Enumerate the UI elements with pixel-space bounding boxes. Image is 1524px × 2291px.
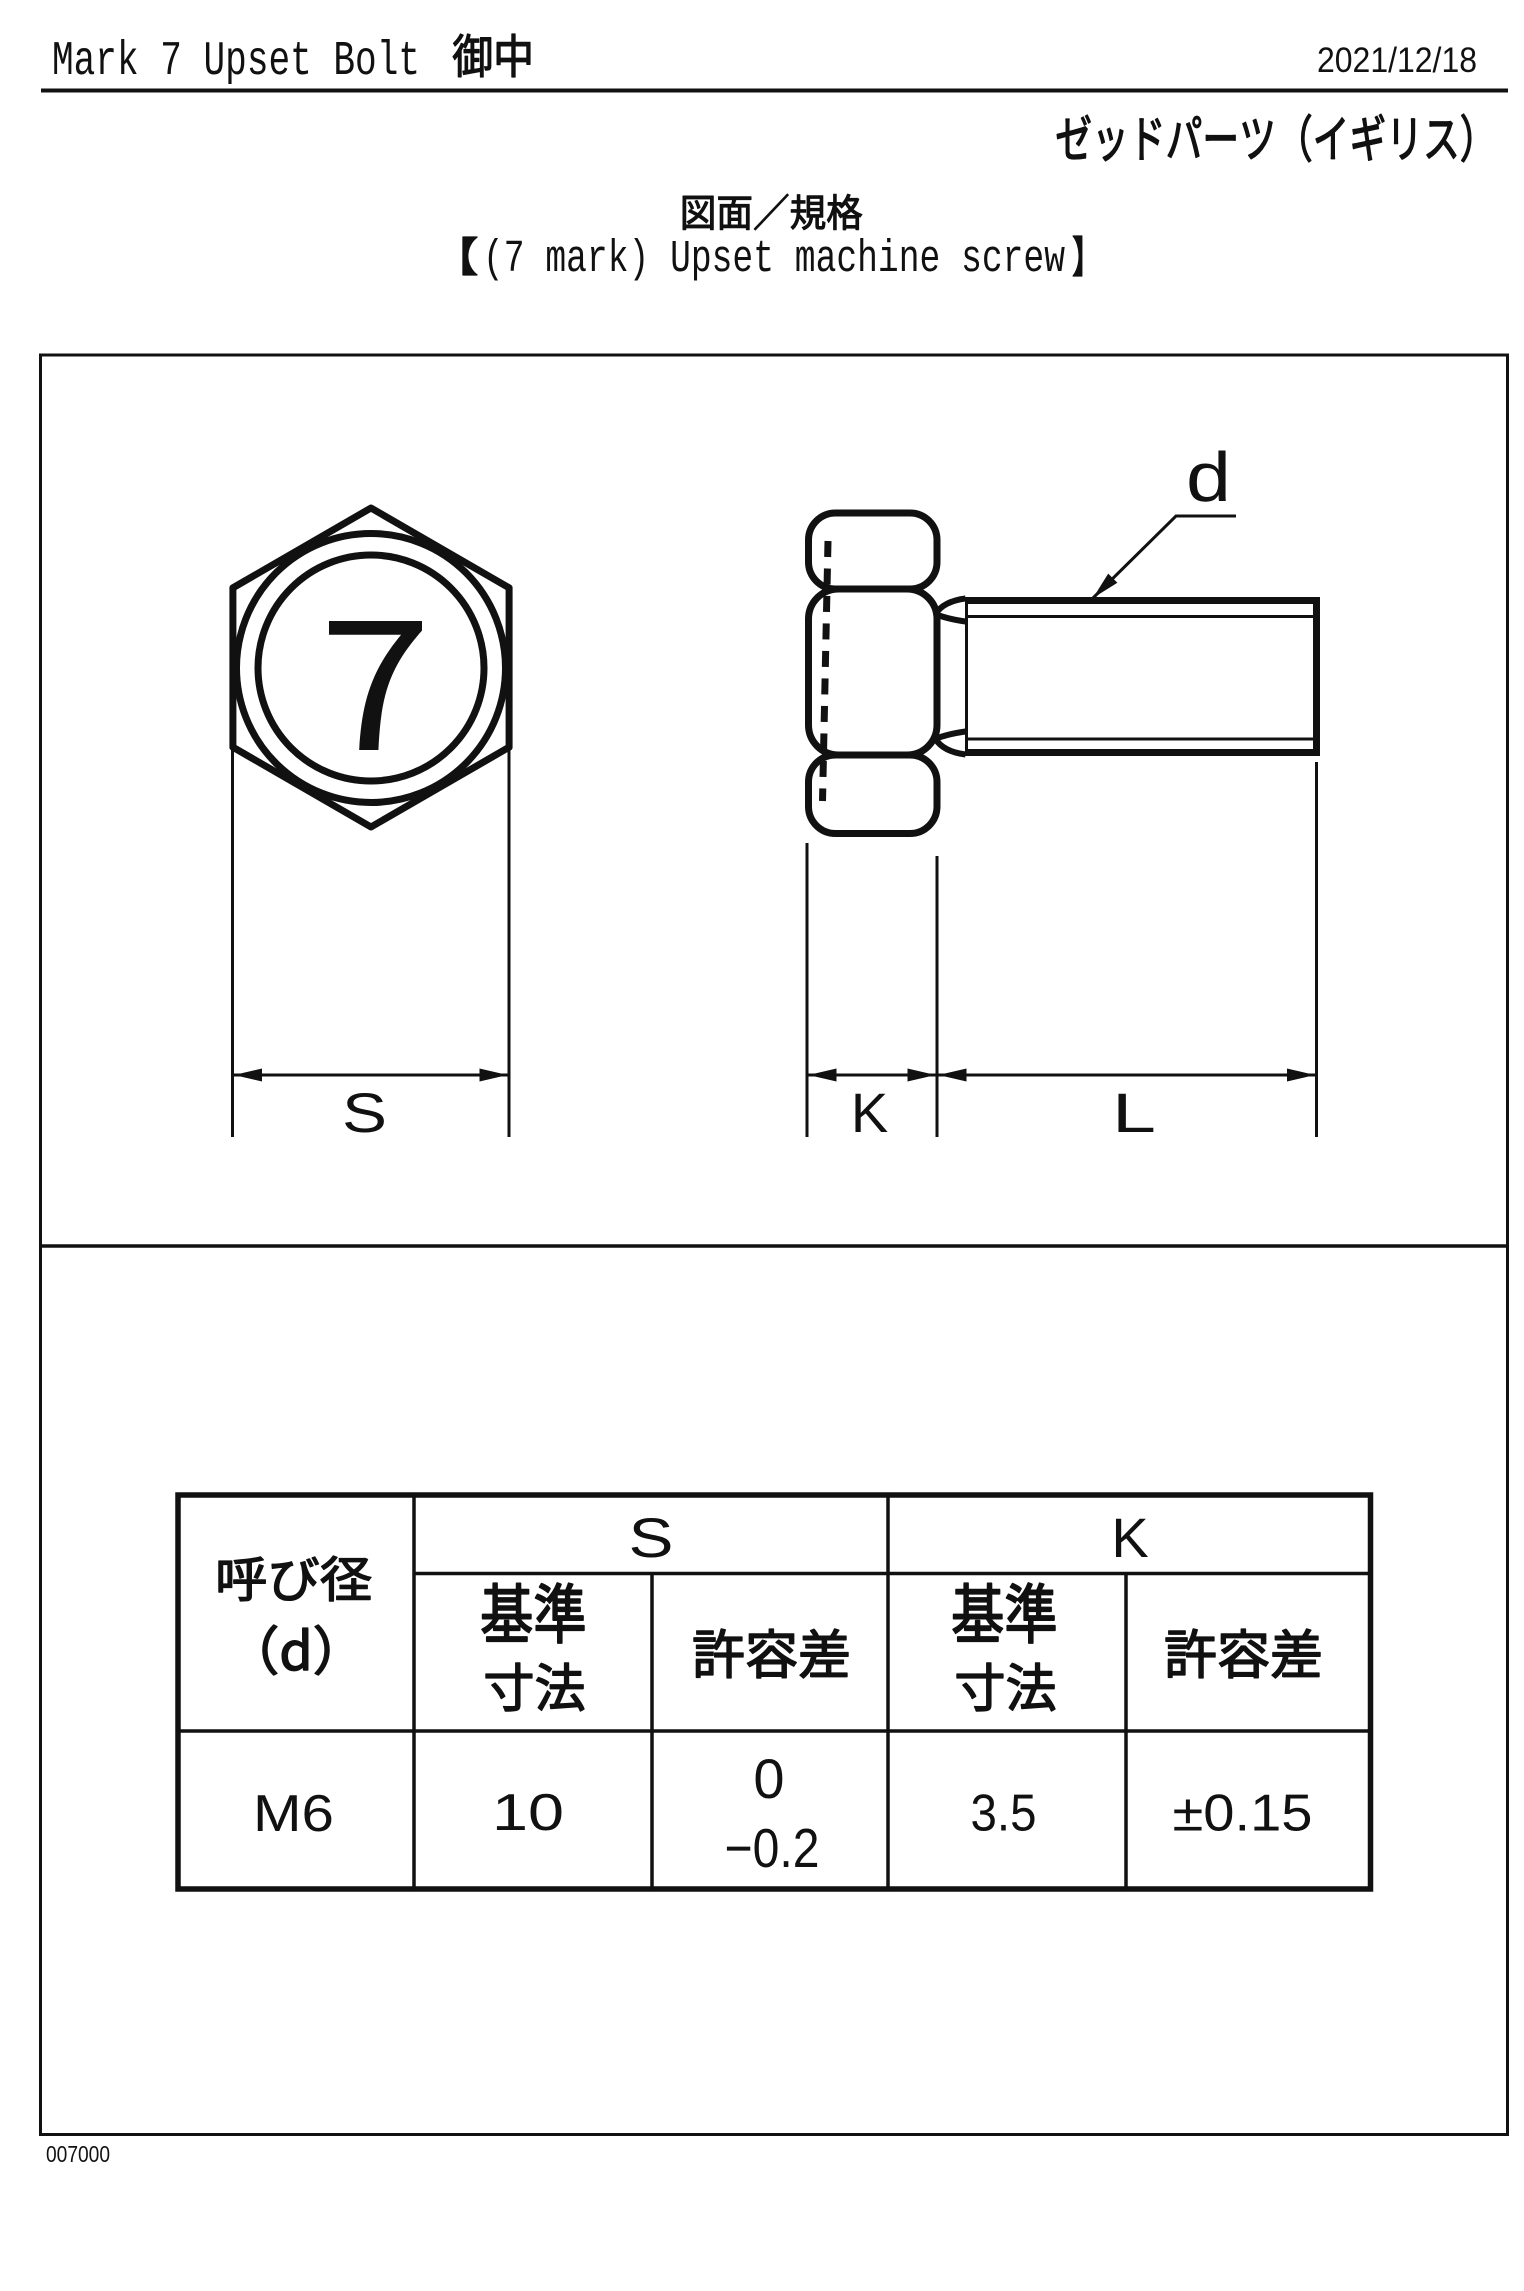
- svg-text:0: 0: [753, 1747, 784, 1810]
- svg-text:007000: 007000: [46, 2141, 110, 2167]
- svg-text:S: S: [342, 1081, 387, 1144]
- svg-text:Mark 7 Upset Bolt: Mark 7 Upset Bolt: [52, 35, 420, 89]
- svg-text:K: K: [851, 1081, 888, 1144]
- svg-text:L: L: [1112, 1081, 1156, 1144]
- svg-text:d: d: [1186, 438, 1231, 516]
- svg-text:3.5: 3.5: [971, 1785, 1037, 1843]
- svg-text:−0.2: −0.2: [725, 1817, 820, 1879]
- svg-text:10: 10: [492, 1784, 564, 1842]
- svg-text:K: K: [1111, 1506, 1148, 1569]
- svg-text:M6: M6: [253, 1785, 334, 1843]
- svg-text:±0.15: ±0.15: [1173, 1785, 1313, 1843]
- svg-text:(7 mark) Upset machine screw: (7 mark) Upset machine screw: [483, 234, 1065, 285]
- svg-text:2021/12/18: 2021/12/18: [1317, 41, 1477, 80]
- svg-text:S: S: [629, 1506, 674, 1569]
